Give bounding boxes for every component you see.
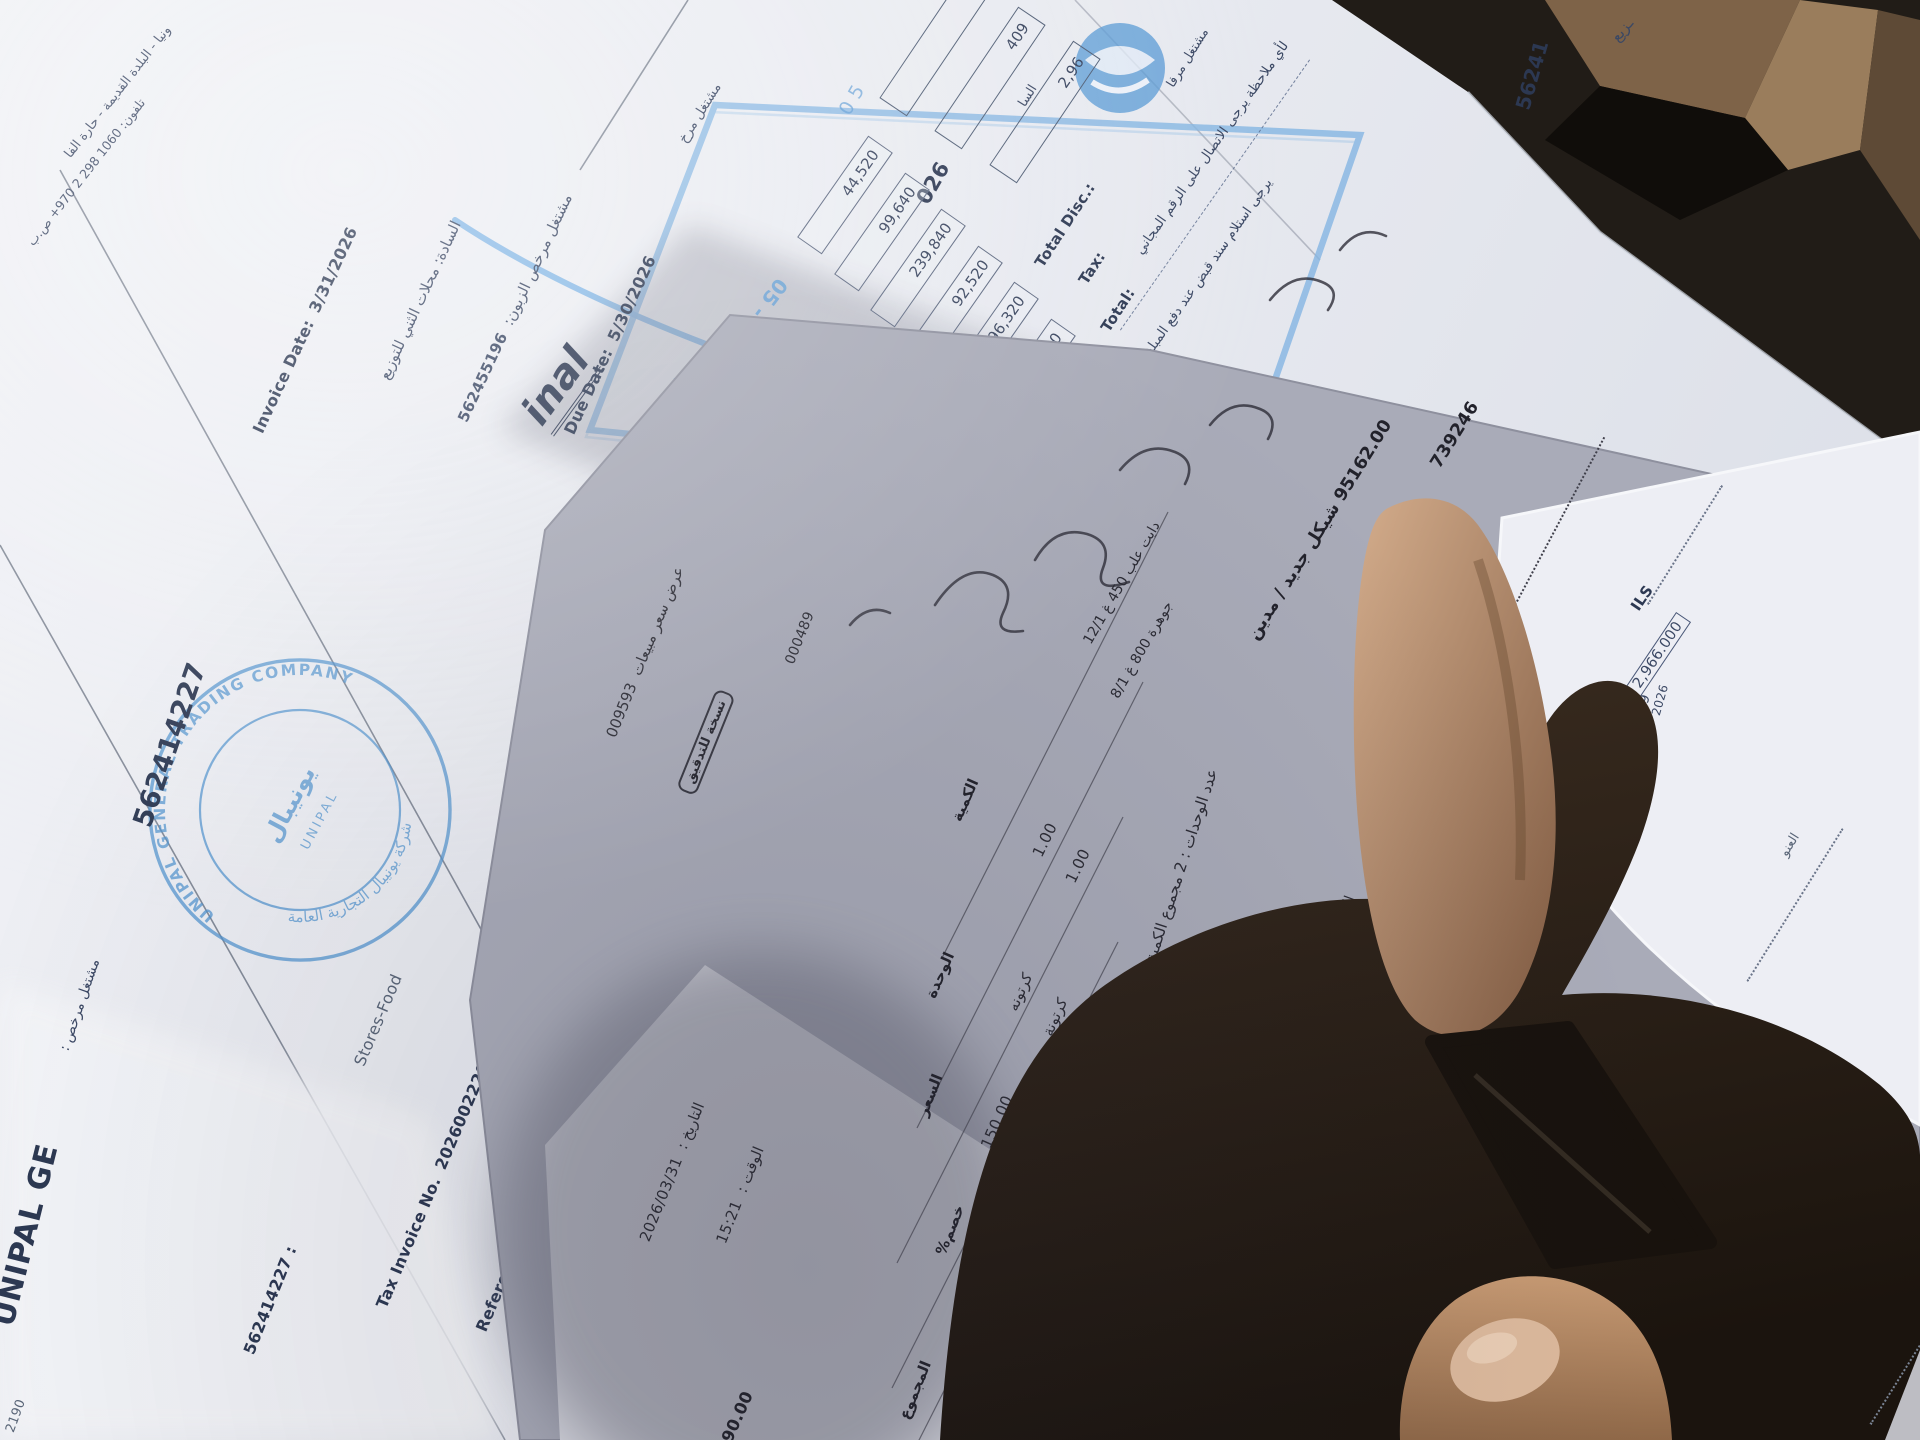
right-paper-fragment-top: ـزيع <box>1607 15 1637 46</box>
receipt-paper <box>1492 432 1920 1125</box>
receipt-label-fragment: العنو <box>1777 831 1803 860</box>
amount-header: Amount <box>775 834 826 907</box>
pinch-thumb <box>1400 1276 1672 1440</box>
receipt-no-label: No: <box>1602 796 1624 823</box>
rect-stamp-date: 05 - 04 - 2026 <box>677 274 792 416</box>
right-paper-header-fragment: مشتغل مرفا <box>1164 26 1212 91</box>
due-date-value: 5/30/2026 <box>604 253 660 345</box>
soft-shadow-blob <box>500 950 1020 1440</box>
rect-stamp-handwritten: 0 5 <box>835 81 870 119</box>
quote-time-line: الوقت : 15:21 <box>712 1144 767 1246</box>
customer-line: السادة: محلات الثني للتوزيع <box>375 218 464 382</box>
stores-food-label: Stores-Food <box>350 971 406 1069</box>
note-divider <box>1120 60 1310 331</box>
disc-pct-header-quote: خصم% <box>932 1202 968 1257</box>
round-stamp-center-ar: يونيبال <box>258 761 321 847</box>
disc-value-1: 0.000000 <box>990 1252 1034 1327</box>
unit-header: الوحدة <box>922 949 958 1001</box>
tax-label: Tax: <box>1075 248 1109 287</box>
receipt-doc-number: 20260022209 <box>1611 693 1653 791</box>
round-stamp-arc-bottom: شركة يونيبال التجارية العامة <box>281 790 422 960</box>
total-value-1: 150.00 <box>966 1379 1004 1438</box>
background-ground <box>1332 0 1920 468</box>
photo-scene: UNIPAL GENERAL TRADING COMPANY شركة يوني… <box>0 0 1920 1440</box>
quote-dotted-line <box>1505 437 1605 623</box>
corner-dotted <box>1870 1339 1920 1425</box>
quote-title-number: 009593 <box>602 680 640 740</box>
total-header-quote: المجموع <box>895 1358 935 1422</box>
red-diamond-stamp <box>1130 1290 1341 1440</box>
qty-value-2: 1.00 <box>1062 846 1094 886</box>
invoice-date-label: Invoice Date: <box>249 317 318 437</box>
tax-invoice-label: Tax Invoice No. <box>372 1174 444 1311</box>
quote-time-value: 15:21 <box>712 1198 745 1246</box>
grand-total: 290.00 <box>713 1388 757 1440</box>
right-paper-number: 56241 <box>1511 38 1554 113</box>
audit-copy-stamp: نسخة للتدقيق <box>676 688 736 796</box>
corner-number: 2190 <box>3 1397 29 1434</box>
invoice-phone: تلفون: 1060 298 2 970+ ص.ب <box>24 95 148 248</box>
item-row-2: جوهرة 800 غ 8/1 <box>1108 599 1177 702</box>
amount-words-line: 95162.00 شيكل جديد / مدين <box>1244 416 1396 643</box>
quote-serial: 000489 <box>782 609 818 666</box>
invoice-empty-grid <box>539 476 1259 1210</box>
tax-invoice-line: Tax Invoice No. 20260022209 <box>372 1049 497 1311</box>
rect-stamp-brand-en: unipal <box>637 395 673 438</box>
price-header: السعر <box>913 1071 946 1118</box>
brand-name: UNIPAL GE <box>0 1140 66 1330</box>
invoice-date-line: Invoice Date: 3/31/2026 <box>249 224 361 436</box>
quote-amount-label: المبل <box>1086 1228 1111 1263</box>
round-stamp-center-en: UNIPAL <box>298 789 341 853</box>
unit-value-2: كرتونة <box>1039 995 1072 1038</box>
bottom-license-number: 562414227 : <box>240 1243 301 1357</box>
note-line-1: لأي ملاحظة يرجى الاتصال على الرقم المجان… <box>1132 38 1292 257</box>
svg-text:شركة يونيبال التجارية العامة: شركة يونيبال التجارية العامة <box>281 790 422 960</box>
quote-title-line: عرض سعر مبيعات 009593 <box>602 564 687 740</box>
due-date-line: Due Date: 5/30/2026 <box>560 253 660 438</box>
reference-line: Reference No.: 2026057657 <box>472 1086 592 1335</box>
thumb-nail-highlight <box>1463 1327 1521 1370</box>
total-value-2: 140.00 <box>1001 1404 1039 1440</box>
disc-value-2: 0.000000 <box>1025 1280 1069 1355</box>
voucher-number: 739246 <box>1427 398 1484 472</box>
qty-value-1: 1.00 <box>1029 820 1061 860</box>
license-number: 562414227 <box>127 659 212 832</box>
invoice-date-value: 3/31/2026 <box>305 224 361 316</box>
quote-time-label: الوقت : <box>733 1144 768 1195</box>
thumb <box>1354 498 1556 1035</box>
quote-bottom-fragment: المص <box>1332 894 1358 931</box>
customer-license-label: مشتغل مرخص الزبون: <box>499 191 576 328</box>
price-value-1: 150.00 <box>977 1093 1016 1152</box>
customer-license-number: 562455196 <box>454 330 511 425</box>
quote-units-line: عدد الوحدات : 2 مجموع الكمية : <box>1139 766 1222 973</box>
tax-invoice-number: 20260022209 <box>431 1049 498 1172</box>
quote-sheet-sunlit <box>545 965 1215 1440</box>
reference-label: Reference No.: <box>472 1200 543 1335</box>
round-stamp-arc-top: UNIPAL GENERAL TRADING COMPANY <box>100 609 359 933</box>
receipt-year: 2026 <box>1649 683 1671 717</box>
disc-pct-header: Disc % <box>954 1230 997 1289</box>
receipt-dotted-2 <box>1647 485 1723 605</box>
pen <box>1432 1028 1710 1262</box>
receipt-no-line: No: 20260022209 <box>1602 693 1654 824</box>
unit-value-1: كرتونه <box>1004 970 1037 1013</box>
header-fragment-1: مشتغل مرخ <box>675 80 724 146</box>
pen-highlight <box>1475 1075 1650 1232</box>
reference-number: 2026057657 <box>530 1086 592 1199</box>
qty-header: الكمية <box>948 776 983 824</box>
corner-paper-sliver <box>1885 1350 1920 1440</box>
svg-text:UNIPAL GENERAL TRADING COMPANY: UNIPAL GENERAL TRADING COMPANY <box>100 609 359 933</box>
quote-date-line: التاريخ : 2026/03/31 <box>636 1100 708 1244</box>
quote-date-value: 2026/03/31 <box>636 1154 686 1244</box>
quote-title: عرض سعر مبيعات <box>627 564 687 678</box>
quote-date-label: التاريخ : <box>673 1100 708 1152</box>
receipt-dotted-1 <box>1746 828 1843 982</box>
thumb-nail <box>1439 1305 1570 1416</box>
license-label: مشتغل مرخص : <box>57 957 103 1053</box>
